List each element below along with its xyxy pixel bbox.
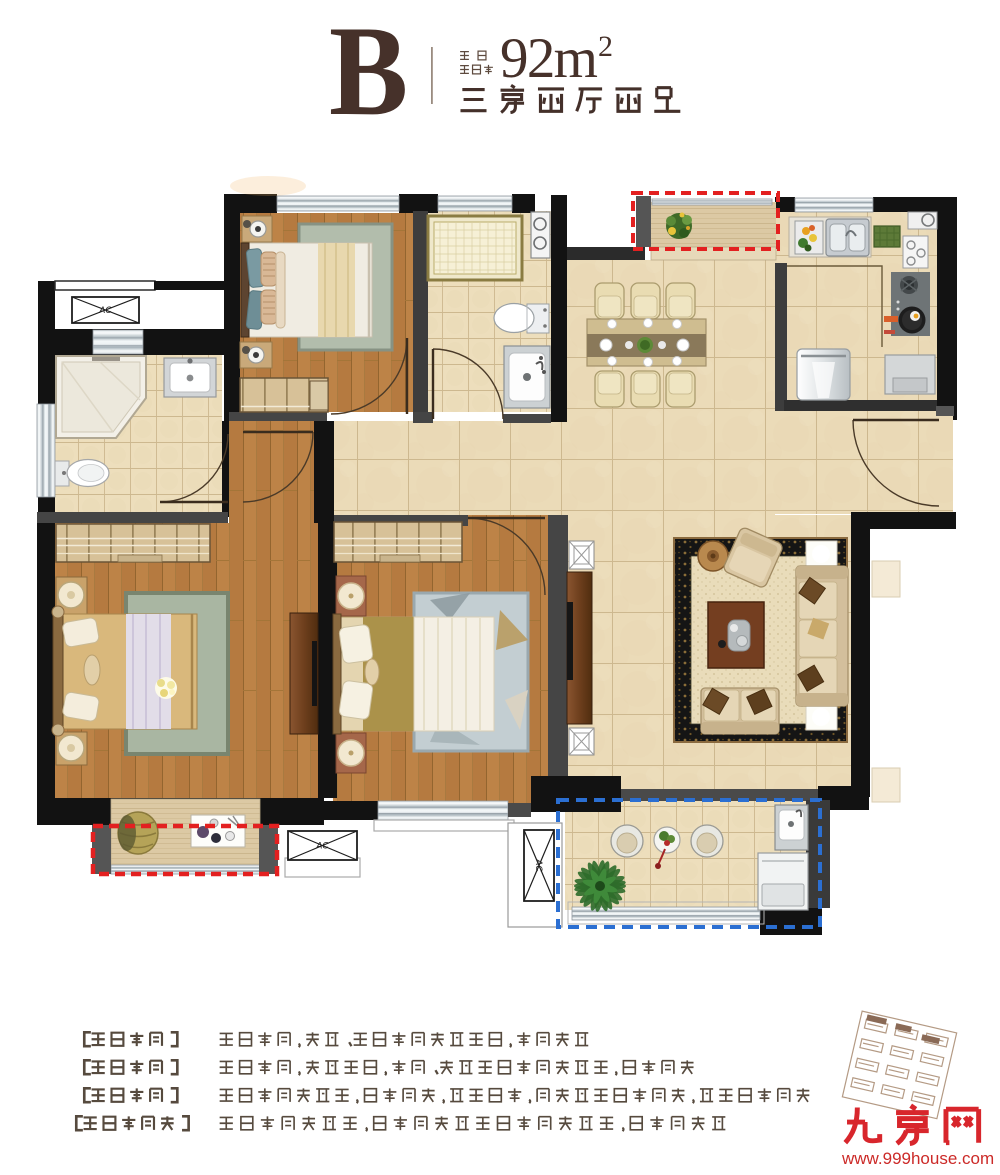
svg-text:AC: AC xyxy=(98,305,112,315)
svg-text:B: B xyxy=(329,0,408,142)
svg-text:92m: 92m xyxy=(500,27,598,90)
svg-text:www.999house.com: www.999house.com xyxy=(841,1149,994,1168)
svg-text:2: 2 xyxy=(598,30,613,63)
svg-text:AC: AC xyxy=(315,841,329,851)
svg-text:AC: AC xyxy=(534,858,544,872)
